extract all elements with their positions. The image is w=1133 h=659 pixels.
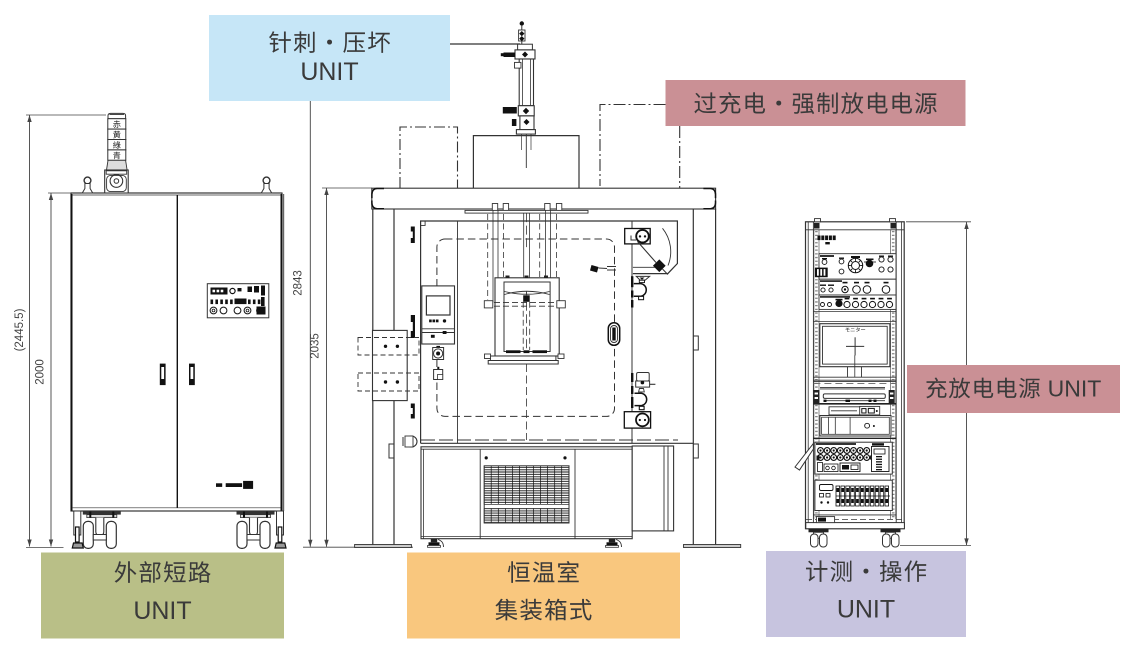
svg-text:UNIT: UNIT <box>133 597 191 625</box>
svg-text:2000: 2000 <box>35 359 47 385</box>
svg-text:UNIT: UNIT <box>837 596 895 624</box>
svg-text:(2445.5): (2445.5) <box>14 308 26 351</box>
svg-text:2035: 2035 <box>310 333 322 359</box>
svg-text:UNIT: UNIT <box>1048 376 1102 402</box>
svg-text:2843: 2843 <box>293 270 305 296</box>
svg-text:UNIT: UNIT <box>300 58 358 86</box>
